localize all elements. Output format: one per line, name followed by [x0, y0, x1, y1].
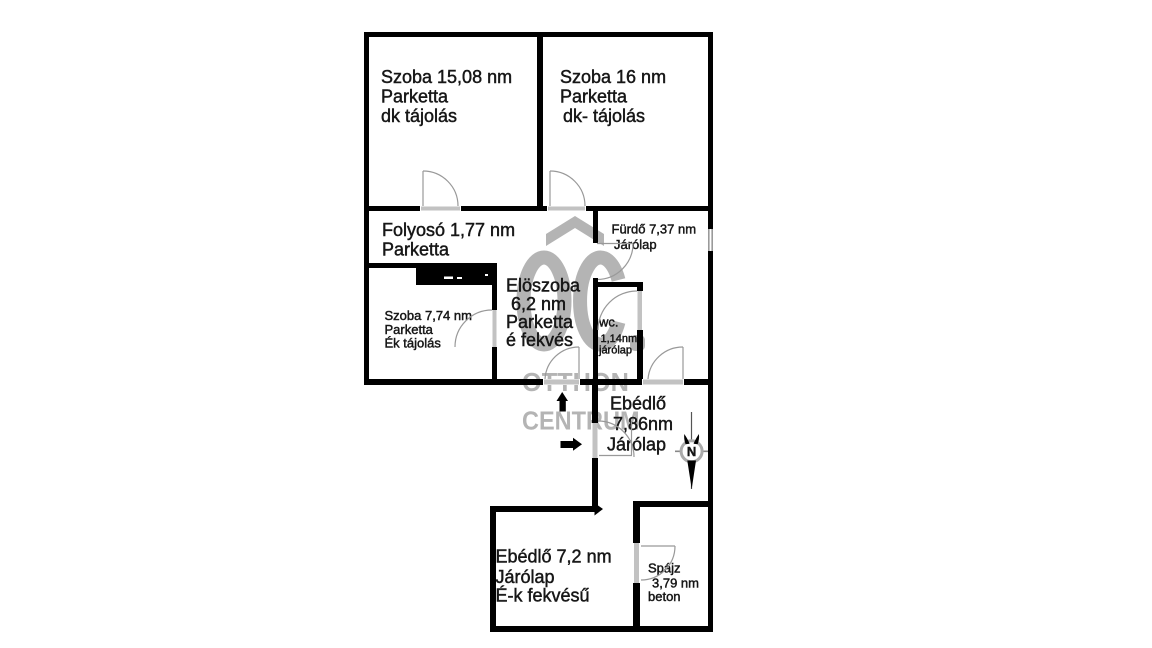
svg-text:járólap: járólap — [598, 345, 632, 357]
svg-text:N: N — [687, 444, 696, 459]
svg-text:Spájz: Spájz — [648, 561, 681, 576]
svg-text:Parketta: Parketta — [382, 240, 450, 260]
svg-text:Elöszoba: Elöszoba — [506, 276, 581, 296]
svg-text:Járólap: Járólap — [614, 237, 657, 252]
svg-text:Járólap: Járólap — [496, 567, 555, 587]
svg-text:beton: beton — [648, 589, 681, 604]
svg-text:dk- tájolás: dk- tájolás — [563, 106, 645, 126]
svg-text:Szoba 16 nm: Szoba 16 nm — [560, 67, 666, 87]
svg-text:dk tájolás: dk tájolás — [381, 106, 457, 126]
svg-text:Ék tájolás: Ék tájolás — [385, 336, 442, 351]
svg-text:7,86nm: 7,86nm — [613, 414, 673, 434]
svg-text:Ebédlő: Ebédlő — [610, 394, 666, 414]
svg-text:Parketta: Parketta — [381, 87, 449, 107]
svg-text:Fürdő 7,37 nm: Fürdő 7,37 nm — [612, 222, 697, 237]
svg-text:Szoba 7,74 nm: Szoba 7,74 nm — [385, 308, 472, 323]
svg-text:Parketta: Parketta — [506, 312, 574, 332]
svg-text:wc.: wc. — [598, 315, 619, 330]
svg-text:é fekvés: é fekvés — [506, 330, 573, 350]
svg-text:É-k fekvésű: É-k fekvésű — [496, 586, 590, 606]
svg-text:Folyosó 1,77 nm: Folyosó 1,77 nm — [382, 220, 515, 240]
svg-text:1,14nm: 1,14nm — [601, 333, 638, 345]
svg-text:6,2 nm: 6,2 nm — [511, 294, 566, 314]
svg-text:Szoba 15,08 nm: Szoba 15,08 nm — [381, 67, 512, 87]
svg-text:Ebédlő 7,2 nm: Ebédlő 7,2 nm — [496, 547, 612, 567]
svg-text:Parketta: Parketta — [560, 87, 628, 107]
svg-text:Járólap: Járólap — [607, 435, 666, 455]
